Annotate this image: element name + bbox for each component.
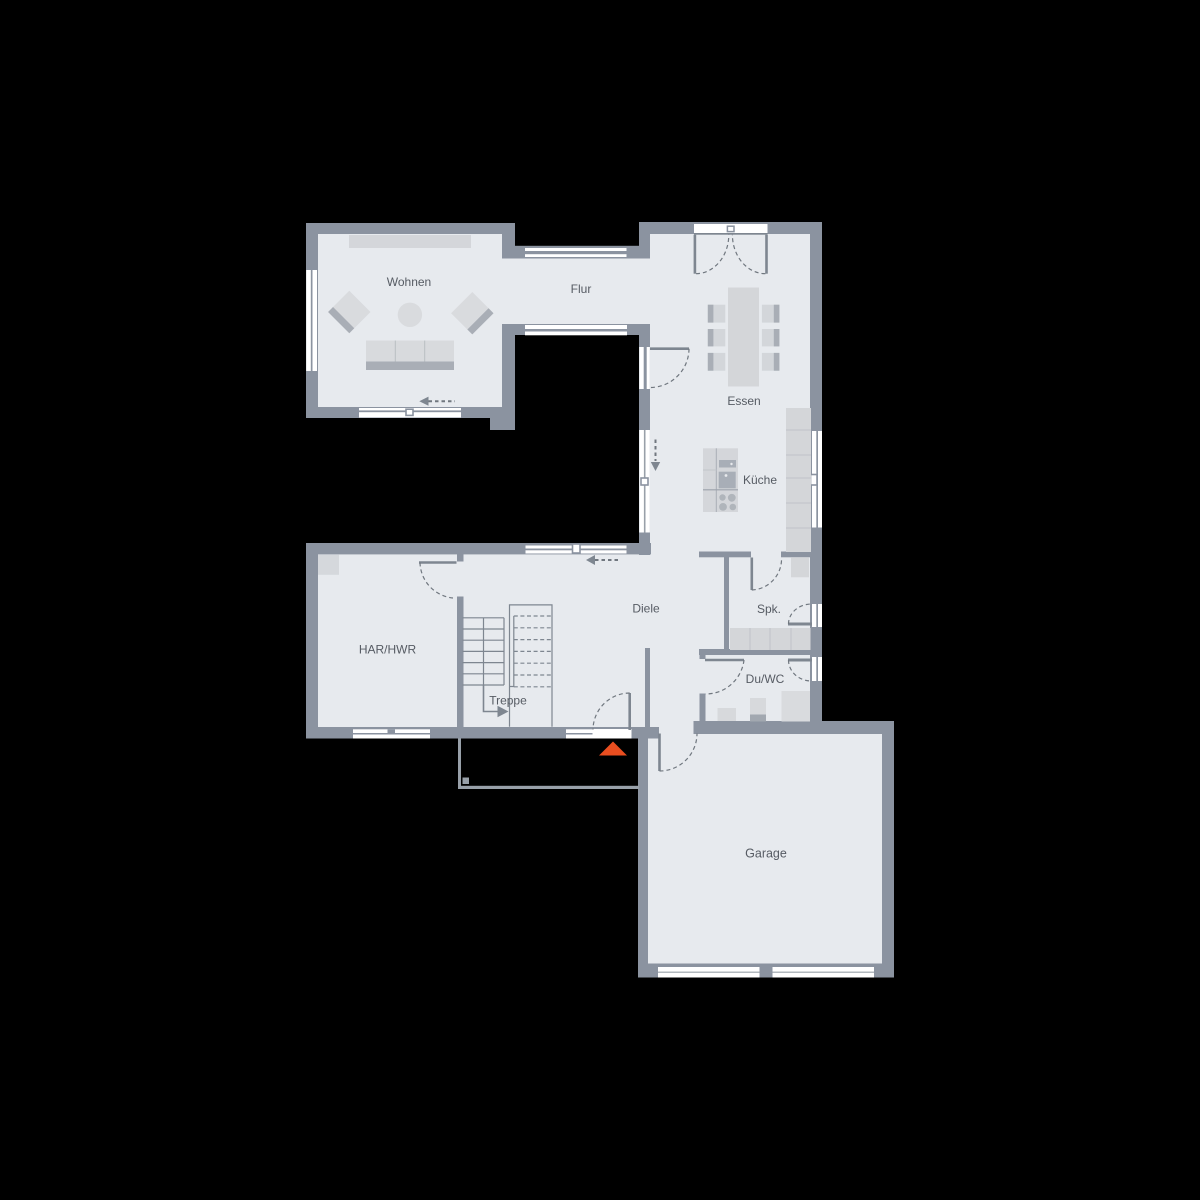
svg-text:Wohnen: Wohnen	[387, 275, 431, 289]
svg-text:Treppe: Treppe	[489, 694, 527, 708]
svg-text:Garage: Garage	[745, 847, 787, 861]
svg-text:Flur: Flur	[571, 282, 592, 296]
svg-text:Essen: Essen	[727, 394, 760, 408]
svg-text:Küche: Küche	[743, 473, 777, 487]
svg-text:Du/WC: Du/WC	[746, 672, 785, 686]
svg-text:Spk.: Spk.	[757, 602, 781, 616]
svg-text:HAR/HWR: HAR/HWR	[359, 643, 417, 657]
svg-text:Diele: Diele	[632, 602, 660, 616]
